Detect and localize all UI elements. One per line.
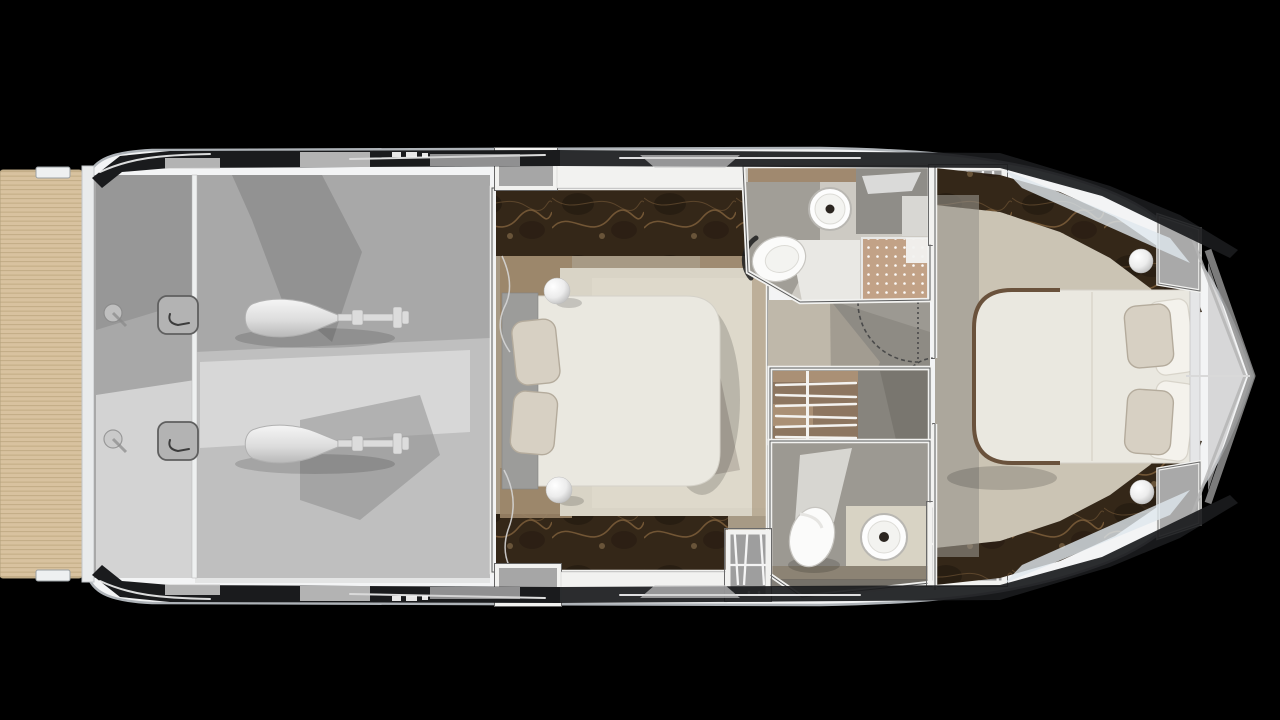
lower-bathroom	[770, 441, 930, 597]
forward-cabin	[935, 166, 1202, 590]
drain-icon	[879, 532, 889, 542]
sphere-lamp	[544, 278, 570, 304]
pillow	[1123, 303, 1174, 369]
swim-platform	[0, 166, 94, 582]
sink-round-lower	[861, 514, 907, 560]
drain-icon	[826, 205, 835, 214]
floorplan-canvas	[0, 0, 1280, 720]
deck-hatch-port	[158, 296, 198, 334]
cockpit-divider	[192, 175, 197, 578]
pillow	[511, 318, 561, 386]
engine-room	[94, 175, 490, 583]
marble-floor-top	[496, 188, 748, 256]
shaft-flange	[393, 307, 402, 328]
sphere-lamp	[1129, 249, 1153, 273]
sphere-lamp	[546, 477, 572, 503]
deck-hatch-starboard	[158, 422, 198, 460]
cleat-marks	[392, 152, 401, 157]
shower-bench	[902, 196, 928, 236]
mid-cabin-bed	[535, 296, 720, 486]
platform-latch-bottom	[36, 570, 70, 581]
pillow	[1124, 388, 1174, 455]
sink-round-upper	[809, 188, 851, 230]
transom-gate	[82, 166, 94, 582]
platform-latch-top	[36, 167, 70, 178]
wardrobe	[770, 368, 930, 443]
pillow	[509, 390, 558, 456]
upper-bathroom	[743, 166, 930, 302]
sphere-lamp	[1130, 480, 1154, 504]
